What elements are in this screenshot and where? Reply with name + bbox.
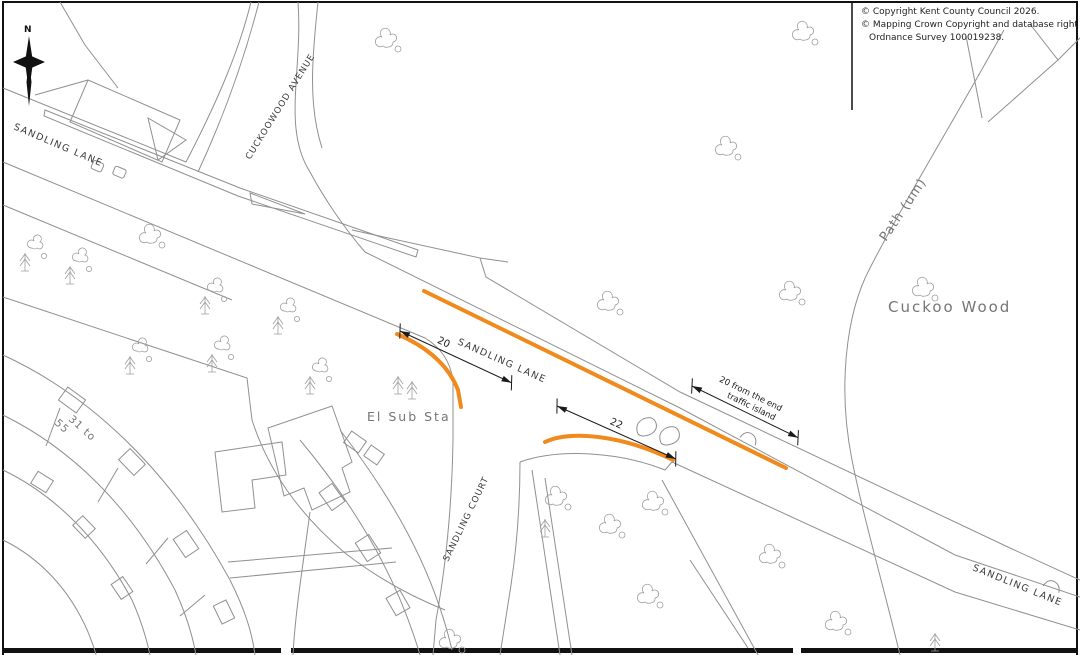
label-houses-range-line1: 31 to	[66, 413, 98, 443]
map-canvas: 20 22 20 from the end traffic island SAN…	[0, 0, 1080, 655]
copyright-line-2: © Mapping Crown Copyright and database r…	[861, 20, 1080, 30]
label-path-um: Path (um)	[877, 176, 930, 245]
map-frame	[2, 1, 1078, 655]
copyright-block: © Copyright Kent County Council 2026. © …	[852, 2, 1080, 110]
label-el-sub-sta: El Sub Sta	[367, 409, 451, 424]
dimension-20-traffic-island: 20 from the end traffic island	[686, 364, 811, 445]
label-cuckoo-wood: Cuckoo Wood	[888, 298, 1011, 316]
trees	[20, 21, 940, 653]
os-labels: Path (um) Cuckoo Wood El Sub Sta 31 to 5…	[52, 176, 1011, 453]
label-houses-range: 31 to 55	[52, 408, 98, 453]
copyright-line-3: Ordnance Survey 100019238.	[869, 33, 1004, 43]
map-plan: 20 22 20 from the end traffic island SAN…	[0, 0, 1080, 655]
restriction-line-east-corner	[545, 436, 673, 460]
copyright-line-1: © Copyright Kent County Council 2026.	[861, 7, 1039, 17]
road-labels: SANDLING LANE CUCKOOWOOD AVENUE SANDLING…	[12, 52, 1064, 608]
label-cuckoowood-avenue: CUCKOOWOOD AVENUE	[244, 52, 317, 161]
label-sandling-lane-bottom-right: SANDLING LANE	[971, 563, 1064, 609]
north-arrow-label: N	[24, 25, 32, 35]
road-linework	[3, 2, 1080, 655]
